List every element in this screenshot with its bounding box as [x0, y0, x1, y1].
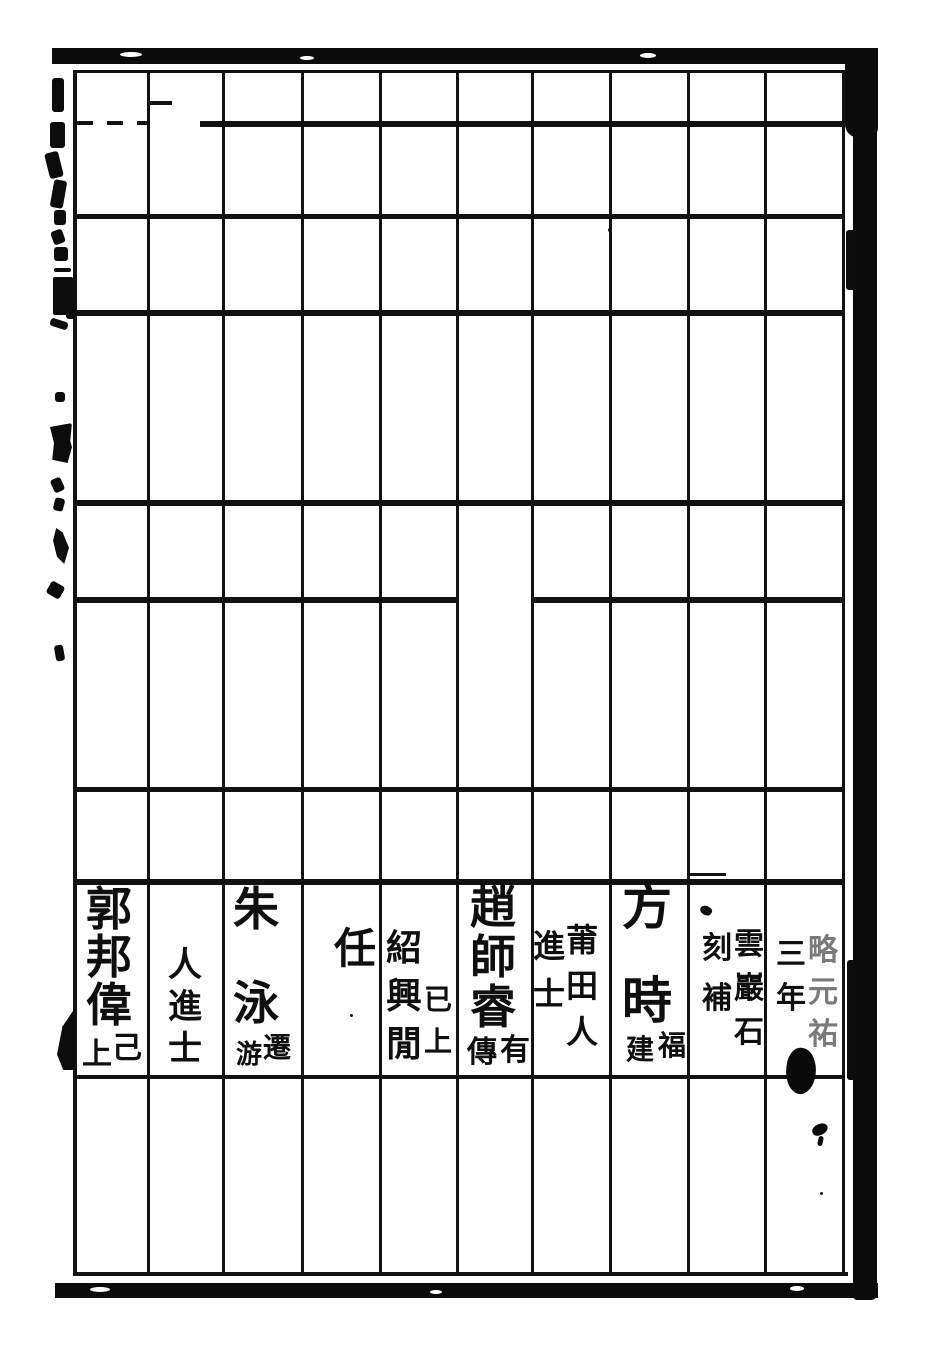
- gutter-fragment: [50, 179, 68, 209]
- gutter-fragment: [50, 476, 66, 493]
- grid-hline: [73, 500, 845, 506]
- note-column-yunyan-shi: 雲巖石: [734, 930, 764, 1048]
- gutter-ink-wedge: [57, 1008, 75, 1070]
- gutter-fragment: [44, 151, 64, 180]
- right-border-corner-blot: [845, 48, 878, 138]
- annotation-right: 已上: [424, 986, 452, 1056]
- paper-speck: [430, 1290, 442, 1294]
- top-border-bar: [52, 48, 878, 64]
- annotation-left: 傳: [467, 1038, 497, 1068]
- paper-speck: [90, 1287, 110, 1292]
- grid-hline-fragment: [688, 873, 726, 876]
- gutter-fragment: [50, 122, 65, 148]
- right-border-band: [853, 48, 877, 1300]
- grid-vline: [456, 70, 459, 1276]
- gutter-fragment: [50, 228, 66, 245]
- annotation-left: 游: [236, 1042, 262, 1068]
- gutter-fragment: [50, 423, 72, 463]
- grid-vline: [222, 70, 225, 1276]
- ink-speck: [350, 1014, 353, 1017]
- grid-vline: [764, 70, 767, 1276]
- ink-speck: [817, 1136, 824, 1147]
- ink-speck: [820, 1192, 823, 1195]
- annotation-right: 遷: [263, 1034, 291, 1062]
- gutter-fragment: [49, 317, 69, 330]
- annotation-left: 上: [82, 1040, 112, 1070]
- grid-hline: [73, 787, 845, 792]
- paper-speck: [790, 1286, 804, 1291]
- paper-speck: [300, 56, 314, 60]
- grid-vline-left-border: [73, 70, 77, 1276]
- grid-vline: [687, 70, 690, 1276]
- paper-speck: [120, 52, 142, 57]
- grid-vline: [301, 70, 304, 1276]
- gutter-fragment: [54, 247, 68, 261]
- grid-hline: [73, 597, 458, 603]
- gutter-fragment: [53, 497, 66, 512]
- gutter-fragment: [54, 644, 66, 661]
- grid-hline: [73, 310, 845, 316]
- gutter-fragment: [54, 210, 66, 225]
- note-column-ren-jinshi: 人進士: [168, 948, 202, 1066]
- bottom-border-bar: [55, 1283, 878, 1298]
- grid-hline-stub: [148, 101, 172, 105]
- ink-speck: [699, 904, 714, 918]
- grid-hline: [73, 1272, 848, 1276]
- name-column-zhu-yong: 朱泳: [233, 886, 279, 1026]
- scanned-book-page: 郭邦偉 己 上 人進士 朱泳 遷 游 任 紹興閒 已上 趙師睿 有 傳 莆田人 …: [0, 0, 925, 1359]
- note-column-ke-bu: 刻補: [702, 934, 732, 1014]
- name-column-guo-bangwei: 郭邦偉: [86, 886, 132, 1028]
- grid-hline: [73, 214, 845, 219]
- gutter-fragment: [66, 307, 75, 319]
- gutter-fragment: [52, 78, 64, 112]
- gutter-fragment: [53, 528, 69, 564]
- gutter-fragment: [54, 268, 71, 272]
- paper-speck: [640, 53, 656, 58]
- grid-vline: [379, 70, 382, 1276]
- grid-vline: [147, 70, 150, 1276]
- grid-hline-dashed: [77, 121, 147, 125]
- grid-hline: [200, 121, 845, 127]
- note-column-jinshi: 進士: [533, 930, 565, 1010]
- grid-hline: [73, 1075, 845, 1079]
- annotation-right: 己: [112, 1034, 142, 1064]
- name-column-zhao-shirui: 趙師睿: [470, 884, 516, 1030]
- name-column-fang-shi: 方時: [622, 882, 672, 1026]
- right-border-blot: [847, 960, 856, 1080]
- right-border-blot: [846, 230, 856, 290]
- note-column-ren: 任: [334, 928, 376, 970]
- grid-hline: [73, 70, 845, 73]
- grid-vline: [609, 70, 612, 1276]
- note-column-putian-ren: 莆田人: [566, 924, 598, 1048]
- note-column-san-nian: 三年: [776, 940, 806, 1014]
- ink-blot: [783, 1046, 819, 1096]
- ink-speck: [608, 228, 612, 232]
- annotation-right: 福: [658, 1032, 686, 1060]
- note-column-lue-yuanyou: 略元祐: [808, 936, 838, 1050]
- annotation-right: 有: [500, 1036, 530, 1066]
- grid-hline: [73, 879, 845, 885]
- text-column-shaoxing-jian: 紹興閒: [386, 930, 422, 1062]
- annotation-left: 建: [626, 1036, 654, 1064]
- grid-vline: [531, 70, 534, 1276]
- grid-vline: [842, 70, 845, 1276]
- gutter-fragment: [55, 392, 65, 402]
- gutter-fragment: [46, 580, 66, 600]
